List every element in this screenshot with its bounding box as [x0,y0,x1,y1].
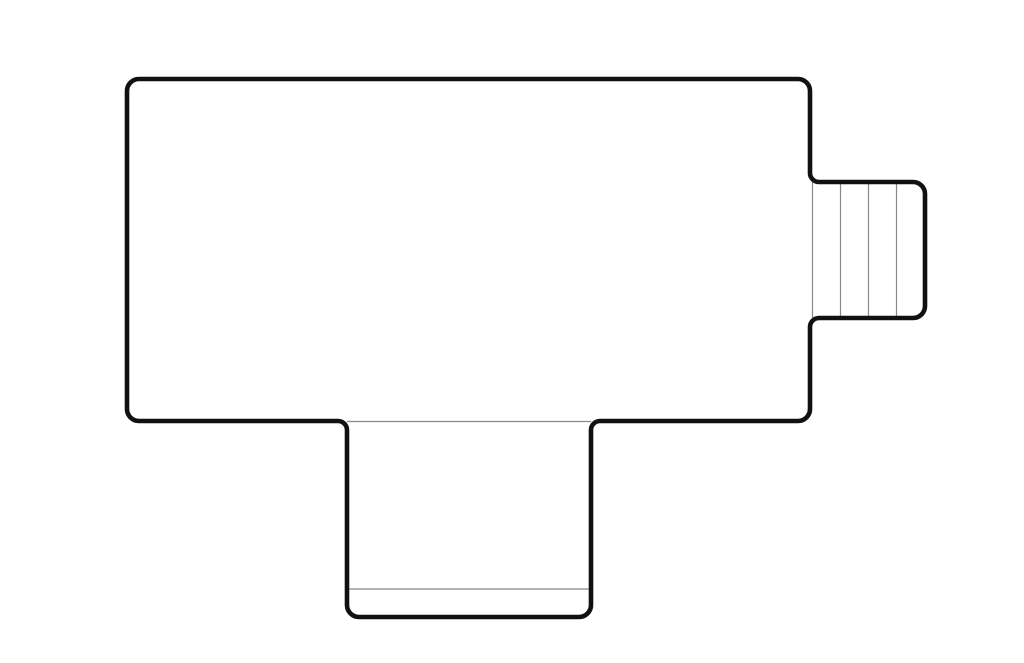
floor-plan-svg [0,0,1024,663]
building-footprint-fill [127,79,925,617]
floor-plan-canvas [0,0,1024,663]
